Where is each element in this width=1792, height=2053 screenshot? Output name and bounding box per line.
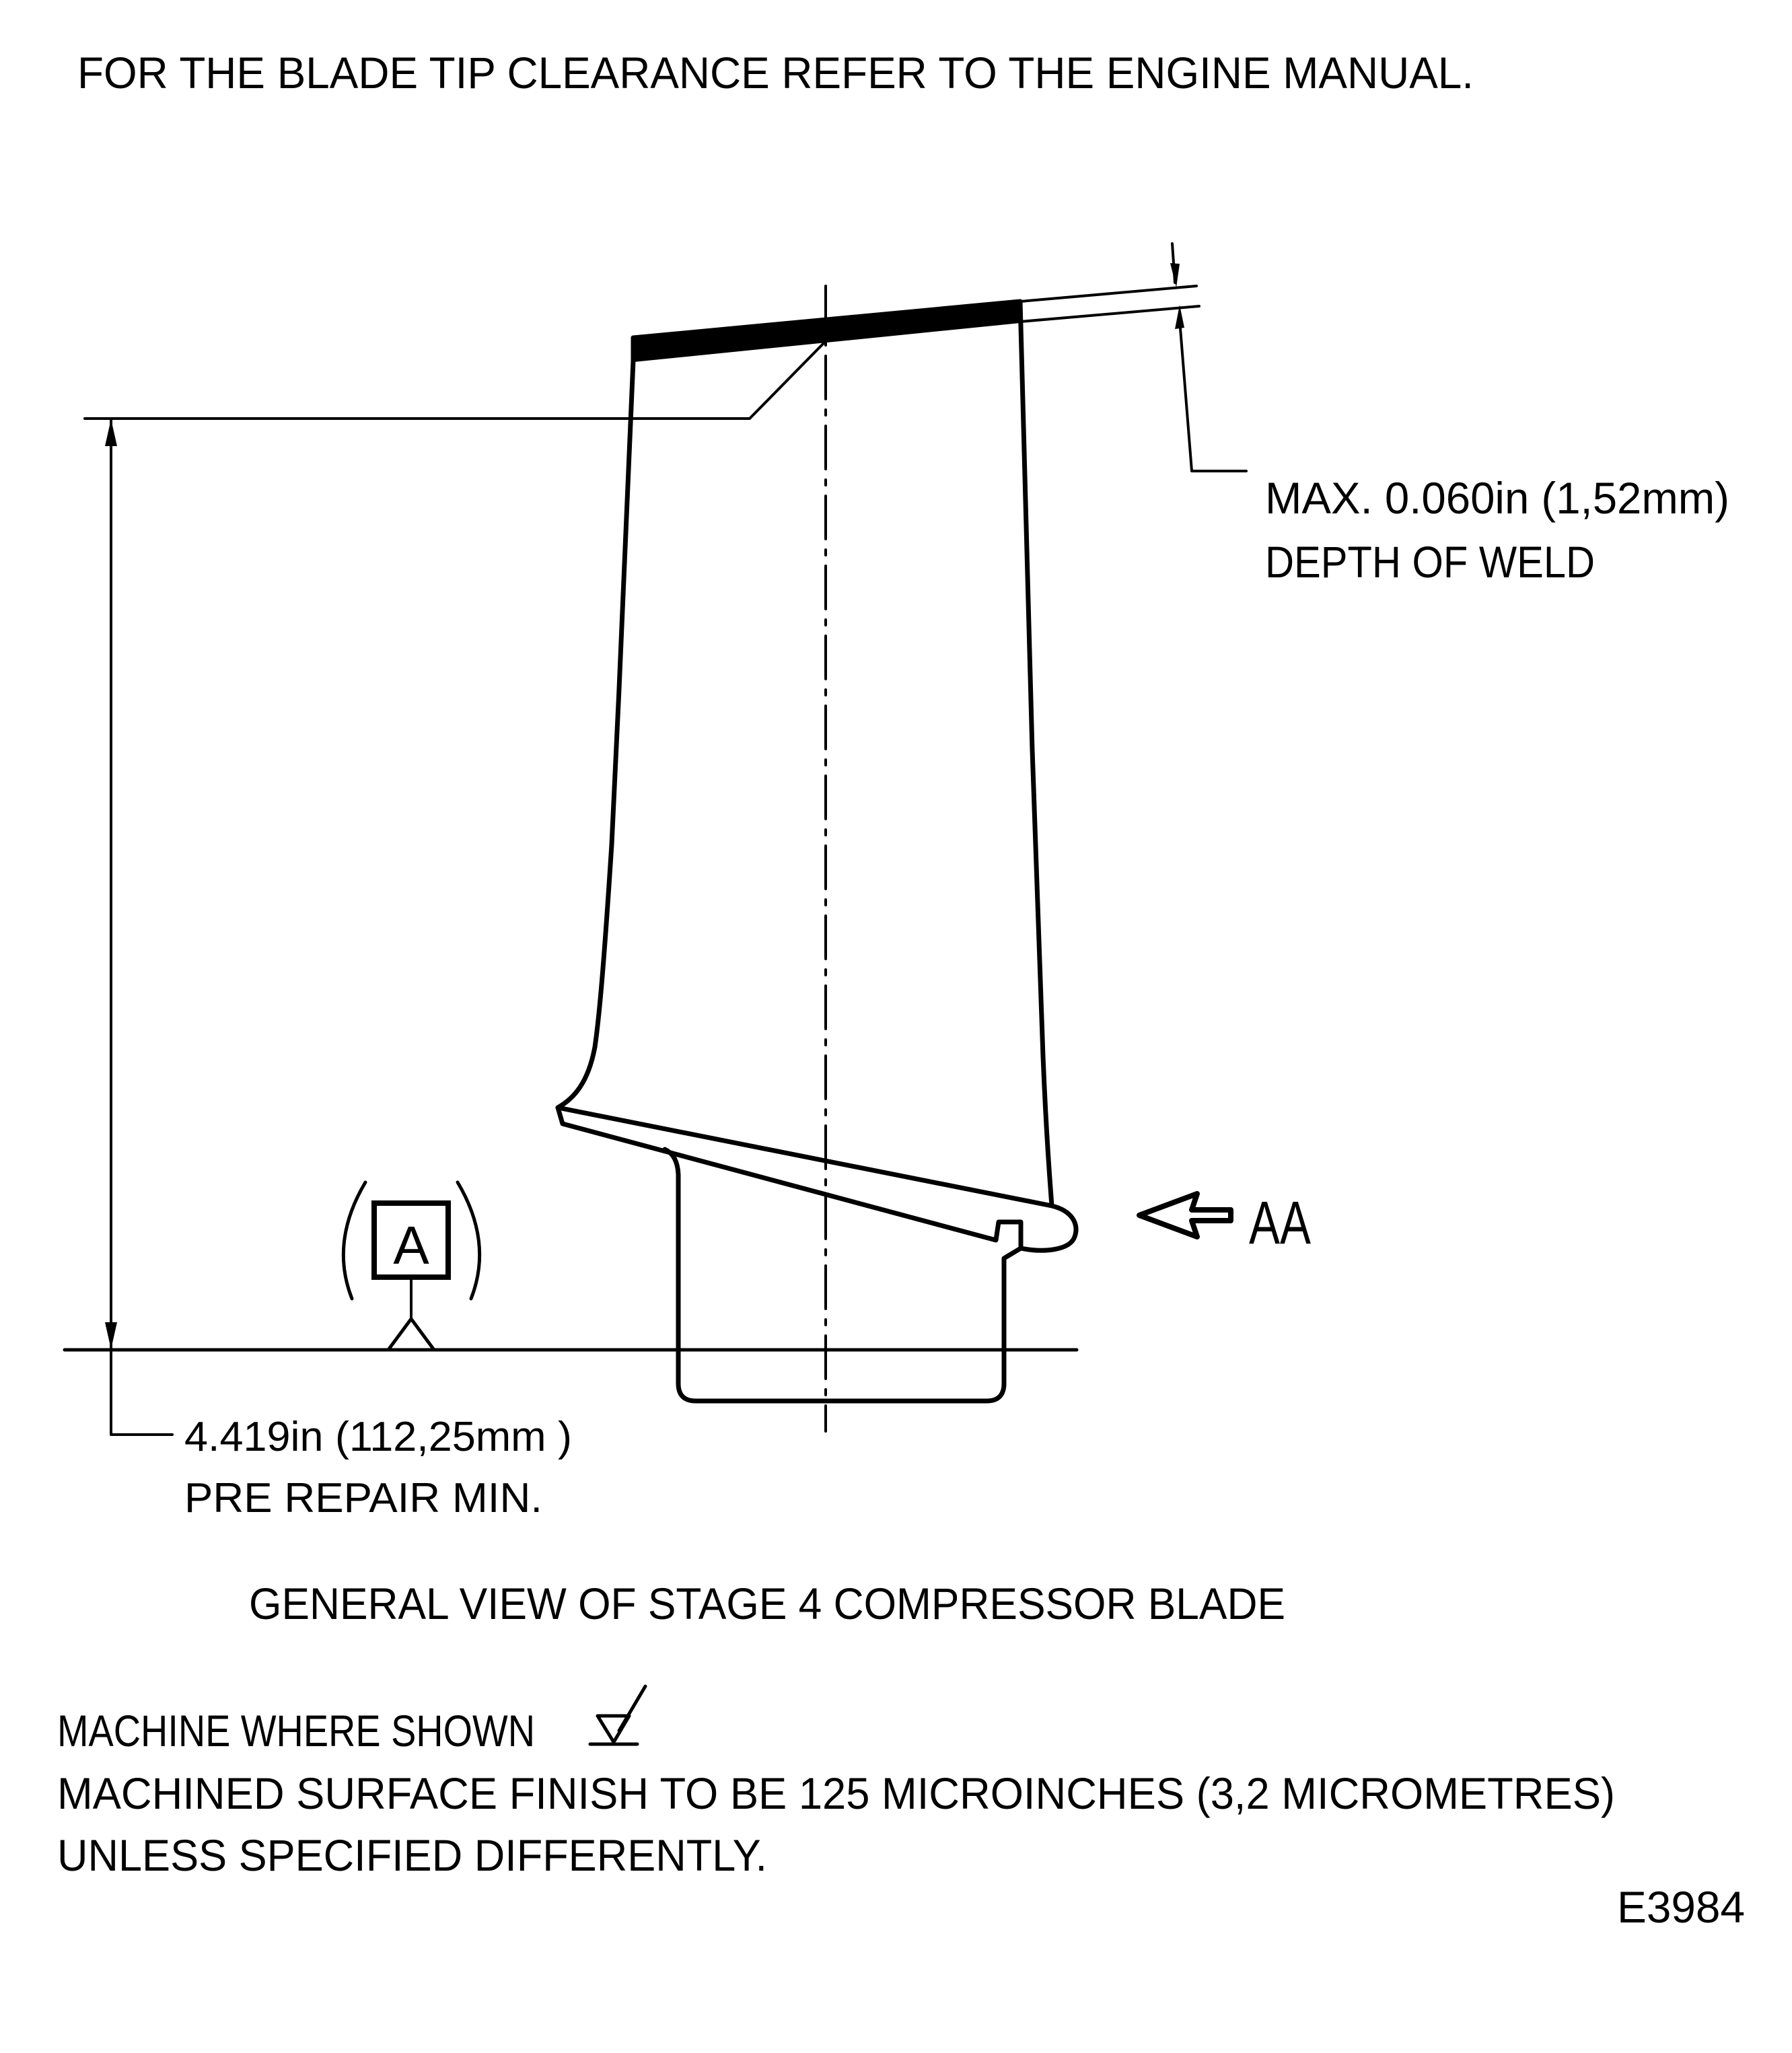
height-dim-line [111,419,172,1435]
view-caption: GENERAL VIEW OF STAGE 4 COMPRESSOR BLADE [249,1579,1285,1628]
section-arrow-icon [1139,1194,1231,1237]
datum-paren-left [343,1182,365,1299]
surface-finish-note: MACHINED SURFACE FINISH TO BE 125 MICROI… [57,1768,1615,1818]
section-aa-arrow: AA [1139,1190,1311,1257]
height-dim-arrow-up [105,419,117,446]
drawing-title: FOR THE BLADE TIP CLEARANCE REFER TO THE… [77,48,1474,98]
blade-drawing: FOR THE BLADE TIP CLEARANCE REFER TO THE… [0,0,1792,2053]
datum-triangle [388,1319,434,1350]
drawing-sheet: FOR THE BLADE TIP CLEARANCE REFER TO THE… [0,0,1792,2053]
datum-paren-right [458,1182,480,1299]
machine-note: MACHINE WHERE SHOWN [57,1706,535,1756]
weld-dim-extension-bottom [1020,306,1199,322]
weld-dim-value: MAX. 0.060in (1,52mm) [1265,473,1729,523]
height-dim-label: PRE REPAIR MIN. [184,1475,542,1521]
qualifier-note: UNLESS SPECIFIED DIFFERENTLY. [57,1830,767,1880]
section-label: AA [1249,1190,1311,1257]
weld-dim-leader [1180,328,1246,471]
datum-label: A [393,1215,429,1275]
weld-dim-label: DEPTH OF WELD [1265,537,1595,587]
height-dim-value: 4.419in (112,25mm ) [184,1414,572,1460]
datum-a-symbol: A [343,1182,479,1350]
machining-symbol-tail [619,1686,645,1731]
blade-left-edge-and-platform [558,338,1021,1248]
document-number: E3984 [1617,1882,1745,1932]
height-dim-arrow-down [105,1322,117,1349]
machining-symbol-icon [590,1686,645,1744]
weld-dim-extension-top [1020,286,1196,301]
blade-right-edge-and-hook [633,301,1076,1250]
